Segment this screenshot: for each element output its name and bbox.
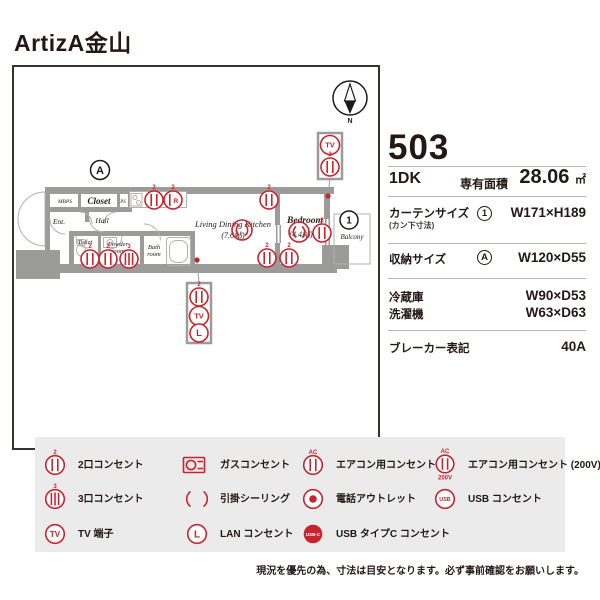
legend-panel: 2 2口コンセント ガスコンセント AC エアコン用コンセント AC 200 [35,437,565,552]
room-label-ent: Ent. [52,217,65,226]
svg-text:L: L [194,530,200,541]
svg-text:2: 2 [320,218,324,224]
legend-item-phone: 電話アウトレット [296,480,416,514]
svg-text:R: R [173,198,178,205]
usb-c-outlet-icon: USB-C [296,514,330,550]
ac-200v-outlet-icon: AC 200V [428,445,462,481]
washer-value: W63×D63 [526,305,586,320]
svg-text:USB-C: USB-C [306,532,321,537]
svg-text:AC: AC [309,450,318,456]
legend-label: LAN コンセント [220,525,293,540]
legend-item-usb: USB USB コンセント [428,480,542,514]
room-label-bath-2: room [147,251,161,258]
divider [388,278,586,279]
svg-text:USB: USB [439,497,450,503]
legend-item-gas: ガスコンセント [180,446,290,480]
legend-label: ガスコンセント [220,456,290,471]
legend-item-tv: TV TV 端子 [38,515,114,549]
curtain-size-sublabel: (カン下寸法) [389,220,434,231]
legend-label: USB コンセント [468,490,542,505]
storage-marker-a: A [91,161,110,180]
legend-label: USB タイプC コンセント [336,525,450,540]
fridge-value: W90×D53 [526,288,586,303]
washer-label: 洗濯機 [389,306,424,322]
svg-text:1: 1 [346,216,352,227]
legend-label: 引掛シーリング [220,490,290,505]
tv-jack-icon: TV [190,307,209,326]
svg-text:AC: AC [441,449,450,455]
svg-text:A: A [96,165,104,177]
ceiling-light-icon [180,479,214,515]
layout-type: 1DK [389,170,421,188]
room-label-hall: Hall [94,216,108,225]
room-label-bath-1: Bath [148,244,160,251]
phone-outlet-icon [296,479,330,515]
legend-item-usbc: USB-C USB タイプC コンセント [296,515,450,549]
room-label-balcony: Balcony [341,233,365,241]
wall-point-dot [325,193,330,198]
divider [388,196,586,197]
storage-size-value: W120×D55 [518,250,586,265]
page: ArtizA金山 [0,0,600,600]
area-unit: ㎡ [575,174,586,186]
wall-point-dot [194,257,199,262]
tv-jack-icon: TV [38,514,72,550]
legend-item-outlet2: 2 2口コンセント [38,446,144,480]
legend-label: 2口コンセント [78,456,144,471]
legend-label: エアコン用コンセント [336,456,436,471]
legend-item-ceiling: 引掛シーリング [180,480,290,514]
divider [388,243,586,244]
svg-text:TV: TV [194,312,204,321]
curtain-size-value: W171×H189 [511,205,586,220]
legend-item-lan: L LAN コンセント [180,515,293,549]
ac-outlet-icon: AC [296,445,330,481]
room-number: 503 [388,128,449,168]
storage-marker: A [477,250,492,265]
fridge-label: 冷蔵庫 [389,289,424,305]
outlet-2-icon: 2 [38,445,72,481]
svg-text:2: 2 [287,243,291,249]
curtain-marker-1: 1 [340,211,358,229]
gas-outlet-icon [180,445,214,481]
page-title: ArtizA金山 [14,24,132,58]
breaker-label: ブレーカー表記 [389,340,470,356]
breaker-value: 40A [561,339,586,354]
outlet-2-icon: 2 [258,243,276,267]
legend-item-ac200: AC 200V エアコン用コンセント (200V) [428,446,600,480]
svg-text:TV: TV [325,141,335,150]
legend-item-ac: AC エアコン用コンセント [296,446,436,480]
outlet-3-icon: 3 [38,479,72,515]
area-value: 28.06 ㎡ [519,166,586,189]
storage-size-label: 収納サイズ [389,251,446,267]
legend-label: 電話アウトレット [336,490,416,505]
legend-label: TV 端子 [78,525,114,540]
legend-label: 3口コンセント [78,490,144,505]
svg-text:L: L [196,328,202,339]
legend-label: エアコン用コンセント (200V) [468,456,600,471]
floor-plan-frame: N A 1 MBPS Closet PS Ent. Hall Toilet Po… [12,65,380,450]
lan-jack-icon: L [190,324,208,342]
room-label-ps: PS [119,200,126,205]
svg-text:2: 2 [265,243,269,249]
compass-icon: N [333,81,367,125]
usb-outlet-icon: USB [428,479,462,515]
curtain-marker: 1 [477,206,492,221]
legend-item-outlet3: 3 3口コンセント [38,480,144,514]
floor-plan-drawing: N A 1 MBPS Closet PS Ent. Hall Toilet Po… [14,67,378,448]
area-label: 専有面積 [460,175,508,192]
room-label-closet: Closet [87,196,111,206]
curtain-size-label: カーテンサイズ [389,205,469,221]
divider [388,330,586,331]
svg-text:TV: TV [50,530,61,539]
svg-text:3: 3 [127,244,131,250]
outlet-2-icon: 2 [280,243,298,267]
room-label-powder-1: Powder [107,241,129,248]
compass-n-label: N [347,118,352,125]
disclaimer-note: 現況を優先の為、寸法は目安となります。必ず事前確認をお願いします。 [256,562,584,577]
lan-jack-icon: L [180,514,214,550]
room-label-mbps: MBPS [57,199,72,205]
area-number: 28.06 [519,166,569,188]
